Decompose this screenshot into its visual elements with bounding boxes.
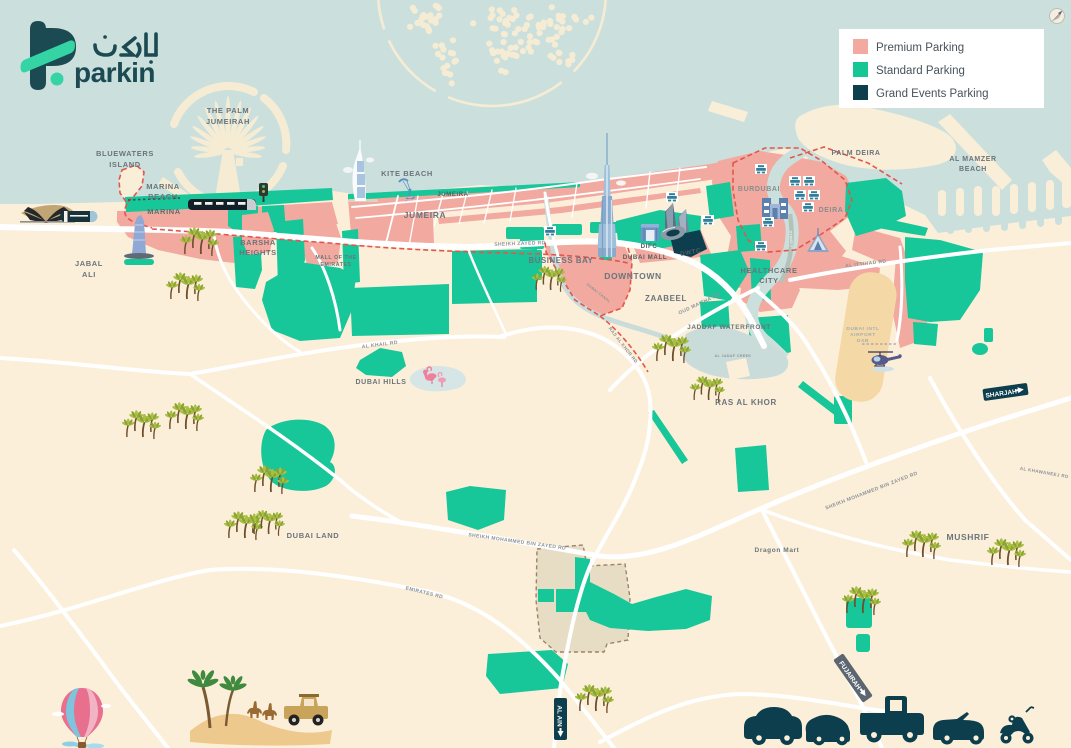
svg-text:HEALTHCARE: HEALTHCARE — [740, 266, 797, 275]
svg-text:JUMEIRA: JUMEIRA — [437, 192, 468, 198]
svg-text:Standard Parking: Standard Parking — [876, 65, 965, 77]
svg-text:AL MAMZER: AL MAMZER — [949, 156, 996, 163]
svg-text:BEACH: BEACH — [148, 192, 178, 201]
svg-text:Grand Events Parking: Grand Events Parking — [876, 88, 989, 100]
svg-text:THE PALM: THE PALM — [207, 106, 250, 115]
svg-text:MARINA: MARINA — [147, 207, 181, 216]
svg-text:BUSINESS BAY: BUSINESS BAY — [529, 256, 594, 265]
svg-text:JUMEIRA: JUMEIRA — [404, 210, 446, 220]
svg-text:BURDUBAI: BURDUBAI — [738, 186, 780, 193]
svg-text:MUSHRIF: MUSHRIF — [947, 532, 990, 542]
svg-text:ALI: ALI — [82, 270, 96, 279]
svg-text:DUBAI INTL: DUBAI INTL — [846, 326, 879, 332]
svg-text:BLUEWATERS: BLUEWATERS — [96, 149, 154, 158]
svg-text:Dragon Mart: Dragon Mart — [755, 547, 800, 554]
svg-text:ZAABEEL: ZAABEEL — [645, 294, 687, 303]
svg-text:JABAL: JABAL — [75, 259, 103, 268]
svg-text:PALM DEIRA: PALM DEIRA — [831, 150, 880, 157]
svg-text:BEACH: BEACH — [959, 166, 987, 173]
svg-text:DXB: DXB — [857, 338, 869, 344]
svg-text:MALL OF THE: MALL OF THE — [315, 255, 356, 261]
svg-text:AL AIN: AL AIN — [556, 705, 563, 727]
svg-text:KITE BEACH: KITE BEACH — [381, 169, 433, 178]
svg-text:Premium Parking: Premium Parking — [876, 42, 964, 54]
svg-text:EMIRATES: EMIRATES — [320, 262, 351, 268]
svg-text:parkin: parkin — [74, 57, 155, 88]
svg-text:DEIRA: DEIRA — [819, 207, 844, 214]
svg-text:ISLAND: ISLAND — [109, 160, 141, 169]
svg-text:AL JADAF CREEK: AL JADAF CREEK — [715, 354, 752, 358]
svg-text:MARINA: MARINA — [146, 182, 180, 191]
svg-text:HEIGHTS: HEIGHTS — [239, 248, 277, 257]
svg-text:BARSHA: BARSHA — [240, 238, 276, 247]
svg-text:DOWNTOWN: DOWNTOWN — [604, 271, 662, 281]
svg-text:RAS AL KHOR: RAS AL KHOR — [715, 398, 777, 407]
svg-text:DUBAI MALL: DUBAI MALL — [623, 254, 668, 261]
svg-text:JUMEIRAH: JUMEIRAH — [206, 117, 250, 126]
svg-text:DUBAI LAND: DUBAI LAND — [287, 531, 340, 540]
svg-text:DIFC: DIFC — [641, 243, 658, 250]
svg-text:JADDAF WATERFRONT: JADDAF WATERFRONT — [687, 324, 771, 331]
svg-text:CITY: CITY — [759, 276, 778, 285]
svg-text:AIRPORT: AIRPORT — [850, 332, 876, 338]
svg-text:DUBAI HILLS: DUBAI HILLS — [356, 379, 407, 386]
